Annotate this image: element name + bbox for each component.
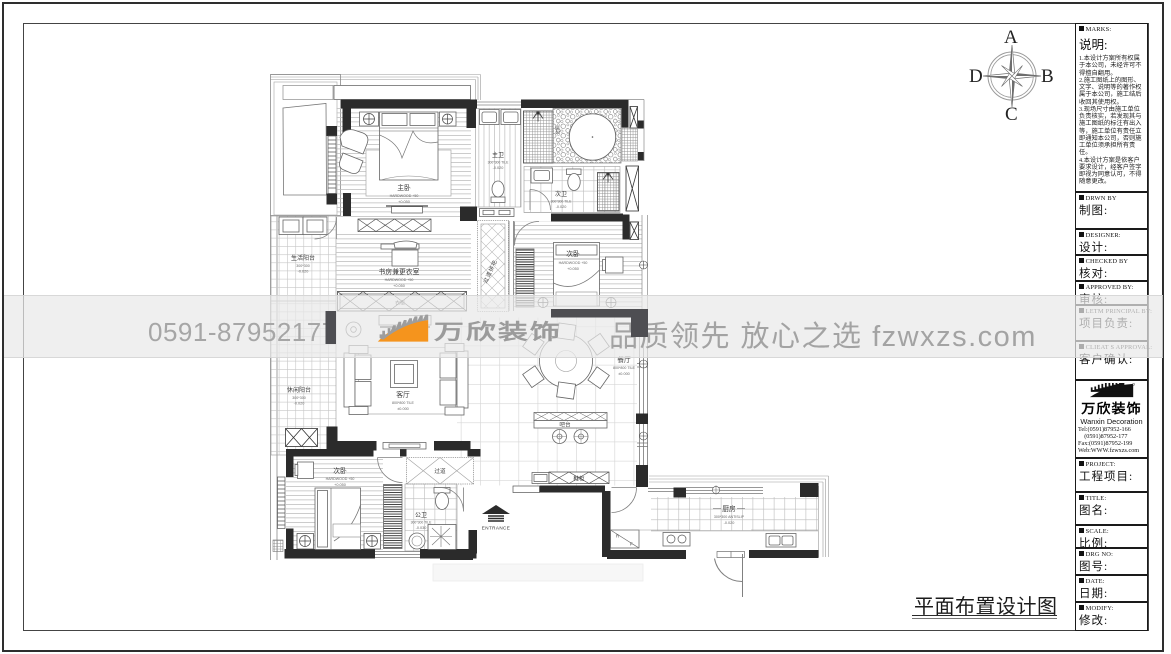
svg-text:主卫: 主卫 — [492, 151, 504, 159]
svg-text:300*300 TILE: 300*300 TILE — [488, 161, 509, 165]
svg-text:主卧: 主卧 — [397, 183, 411, 192]
svg-text:HARDWOOD +50: HARDWOOD +50 — [559, 261, 588, 265]
svg-text:厨房: 厨房 — [722, 504, 736, 513]
svg-text:R: R — [616, 534, 619, 539]
svg-text:800*800 TILE: 800*800 TILE — [613, 366, 636, 370]
svg-text:鞋柜: 鞋柜 — [573, 475, 585, 483]
svg-text:客厅: 客厅 — [396, 390, 410, 399]
svg-text:-0.020: -0.020 — [724, 521, 735, 525]
svg-text:300*300 TILE: 300*300 TILE — [551, 200, 572, 204]
svg-text:HARDWOOD +50: HARDWOOD +50 — [326, 477, 355, 481]
svg-text:过道: 过道 — [434, 467, 446, 475]
svg-text:休闲阳台: 休闲阳台 — [287, 386, 311, 394]
svg-text:+0.050: +0.050 — [334, 483, 346, 487]
svg-text:-0.020: -0.020 — [556, 205, 567, 209]
svg-text:台阶: 台阶 — [554, 125, 561, 135]
svg-text:+0.050: +0.050 — [567, 267, 579, 271]
svg-text:-0.020: -0.020 — [493, 166, 504, 170]
svg-text:F: F — [630, 542, 633, 547]
svg-text:800*800 TILE: 800*800 TILE — [392, 401, 415, 405]
svg-text:HARDWOOD +50: HARDWOOD +50 — [385, 278, 414, 282]
svg-text:-0.030: -0.030 — [416, 526, 427, 530]
svg-text:-0.020: -0.020 — [294, 402, 305, 406]
svg-text:HARDWOOD +50: HARDWOOD +50 — [390, 194, 419, 198]
svg-text:+0.050: +0.050 — [393, 284, 405, 288]
svg-text:次卧: 次卧 — [333, 466, 347, 475]
svg-text:±0.000: ±0.000 — [618, 372, 630, 376]
svg-text:300*300 TILE: 300*300 TILE — [411, 521, 432, 525]
svg-text:300*300: 300*300 — [292, 396, 305, 400]
svg-text:次卧: 次卧 — [566, 249, 580, 258]
svg-text:次卫: 次卫 — [555, 190, 567, 198]
svg-text:+0.050: +0.050 — [398, 200, 410, 204]
svg-text:ENTRANCE: ENTRANCE — [482, 526, 510, 531]
svg-text:-0.020: -0.020 — [298, 270, 309, 274]
svg-text:±0.000: ±0.000 — [397, 407, 409, 411]
svg-text:300*300: 300*300 — [296, 264, 309, 268]
svg-text:生活阳台: 生活阳台 — [291, 254, 315, 262]
svg-text:书房兼更衣室: 书房兼更衣室 — [379, 267, 420, 276]
svg-text:吧台: 吧台 — [559, 421, 571, 429]
svg-text:300*300 ANTISLIP: 300*300 ANTISLIP — [714, 515, 745, 519]
svg-text:公卫: 公卫 — [415, 512, 427, 519]
